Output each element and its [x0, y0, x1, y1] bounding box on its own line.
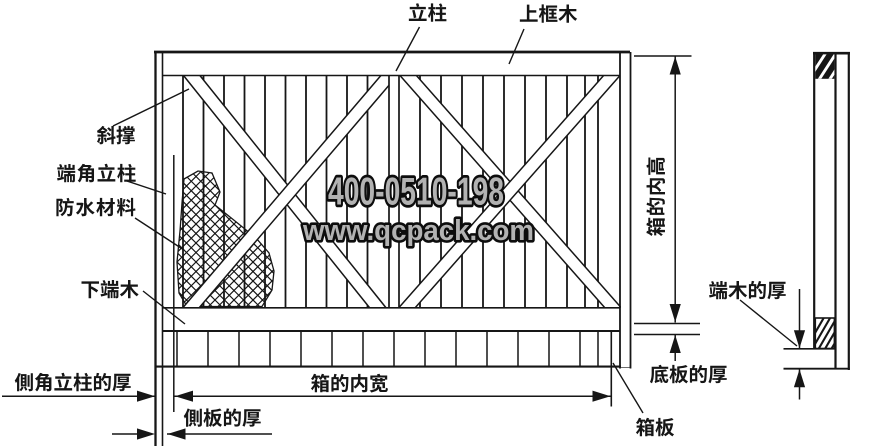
svg-text:www.qcpack.com: www.qcpack.com [302, 215, 534, 247]
svg-text:400-0510-198: 400-0510-198 [328, 171, 504, 214]
